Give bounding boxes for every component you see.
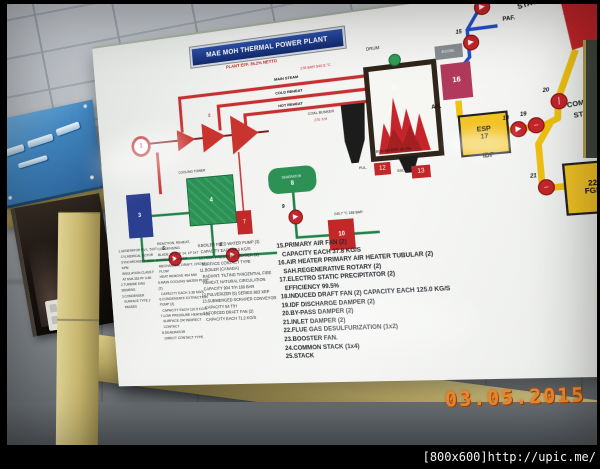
component-number: 19 xyxy=(520,111,527,118)
camera-date-stamp: 03.05.2015 xyxy=(445,383,586,412)
component-glyph-icon: | xyxy=(558,97,561,105)
component-glyph-icon: – xyxy=(544,183,549,191)
component-glyph-icon: ▶ xyxy=(515,125,522,133)
component-glyph-icon: ▶ xyxy=(479,4,485,11)
photo-of-plant-diagram-board: MAE MOH THERMAL POWER PLANT PLANT EFF. 3… xyxy=(0,0,600,469)
screw-icon xyxy=(90,175,94,180)
component-number: 20 xyxy=(542,87,549,94)
screw-icon xyxy=(83,104,87,109)
right-wall-edge xyxy=(583,40,597,158)
sign-lettering xyxy=(56,121,81,136)
spec-column-3: 9.BOILER FEED WATER PUMP (3)CAPACITY EAC… xyxy=(198,238,286,323)
sign-lettering xyxy=(18,155,48,169)
power-plant-diagram-board: MAE MOH THERMAL POWER PLANT PLANT EFF. 3… xyxy=(92,4,597,386)
inlet-damper-21: –21 xyxy=(537,179,555,197)
component-glyph-icon: ▶ xyxy=(293,213,299,220)
component-number: 15 xyxy=(455,28,462,35)
sign-lettering xyxy=(27,133,54,148)
board-content: MAE MOH THERMAL POWER PLANT PLANT EFF. 3… xyxy=(92,4,597,386)
bfp-pump-9: ▶9 xyxy=(288,209,304,225)
component-number: 18 xyxy=(502,115,509,122)
component-number: 9 xyxy=(282,203,285,209)
paf-fan-15: ▶15 xyxy=(462,34,480,52)
idf-damper-19: –19 xyxy=(527,116,545,134)
spec-column-4: 15.PRIMARY AIR FAN (2)CAPACITY EACH 37.8… xyxy=(276,229,495,362)
sign-lettering xyxy=(7,144,25,157)
bypass-damper-20: |20 xyxy=(550,92,569,110)
watermark-text: [800x600]http://upic.me/ xyxy=(423,450,596,464)
hallway-scene: MAE MOH THERMAL POWER PLANT PLANT EFF. 3… xyxy=(7,4,597,445)
component-glyph-icon: – xyxy=(534,121,539,129)
paf-fan-15b: ▶15 xyxy=(473,4,491,16)
screw-icon xyxy=(8,195,12,200)
wall-pillar xyxy=(56,212,101,445)
component-number: 21 xyxy=(530,172,537,179)
spec-line: SURFACE TYPE 2 PASSES xyxy=(122,297,162,310)
watermark-bar: [800x600]http://upic.me/ xyxy=(0,445,600,469)
idf-fan-18: ▶18 xyxy=(510,120,528,138)
component-glyph-icon: ▶ xyxy=(468,39,474,47)
